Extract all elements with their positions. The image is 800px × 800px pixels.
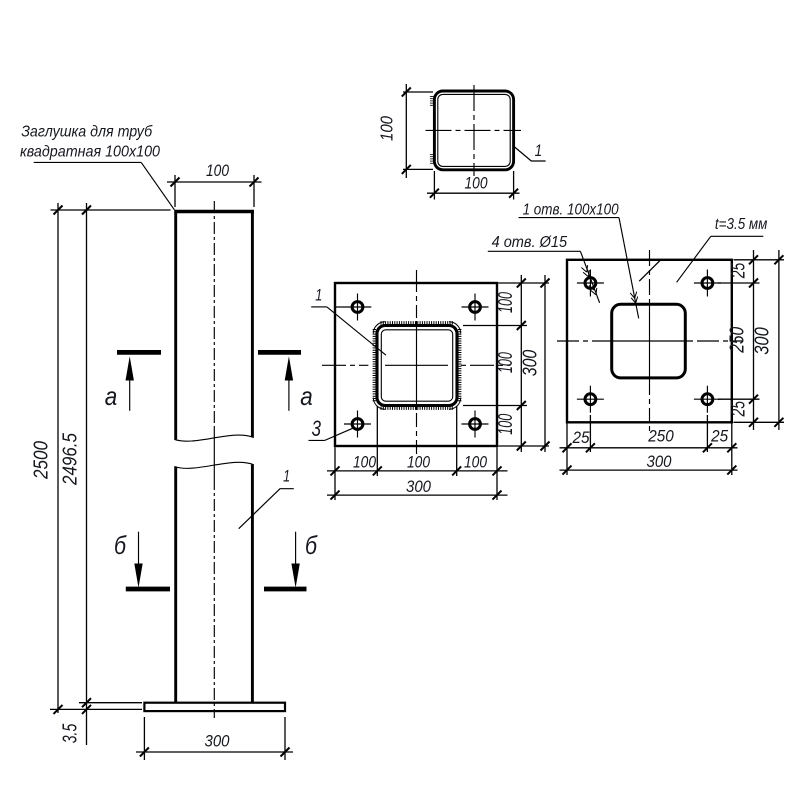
svg-text:квадратная 100х100: квадратная 100х100 [20,144,160,161]
svg-text:100: 100 [464,453,487,472]
svg-text:2500: 2500 [30,441,53,480]
svg-text:300: 300 [519,349,542,376]
svg-text:1: 1 [535,142,543,160]
svg-text:100: 100 [377,116,397,141]
svg-text:300: 300 [406,477,431,496]
svg-text:100: 100 [353,453,376,472]
svg-text:1 отв. 100х100: 1 отв. 100х100 [523,201,619,218]
svg-text:4 отв. Ø15: 4 отв. Ø15 [492,234,568,251]
svg-text:25: 25 [728,401,750,417]
svg-text:б: б [305,530,318,560]
svg-text:3: 3 [312,416,322,441]
svg-text:300: 300 [751,327,774,355]
svg-text:100: 100 [494,352,517,373]
svg-text:а: а [105,381,118,411]
svg-text:250: 250 [647,427,674,446]
svg-text:25: 25 [728,263,750,279]
svg-text:1: 1 [283,467,290,485]
svg-text:25: 25 [572,428,590,447]
svg-text:а: а [300,381,313,411]
svg-text:1: 1 [315,286,322,304]
svg-text:100: 100 [494,413,517,434]
svg-text:3.5: 3.5 [60,723,82,743]
svg-text:100: 100 [465,174,488,193]
svg-text:2496.5: 2496.5 [59,433,82,486]
svg-text:300: 300 [205,731,230,750]
svg-text:25: 25 [710,427,728,446]
svg-text:б: б [114,530,127,560]
svg-text:100: 100 [206,161,229,180]
svg-text:100: 100 [407,453,430,472]
svg-text:t=3.5 мм: t=3.5 мм [715,216,768,233]
svg-text:250: 250 [726,326,749,353]
svg-text:100: 100 [494,292,517,313]
svg-text:Заглушка для труб: Заглушка для труб [21,123,153,140]
svg-text:300: 300 [647,452,672,471]
